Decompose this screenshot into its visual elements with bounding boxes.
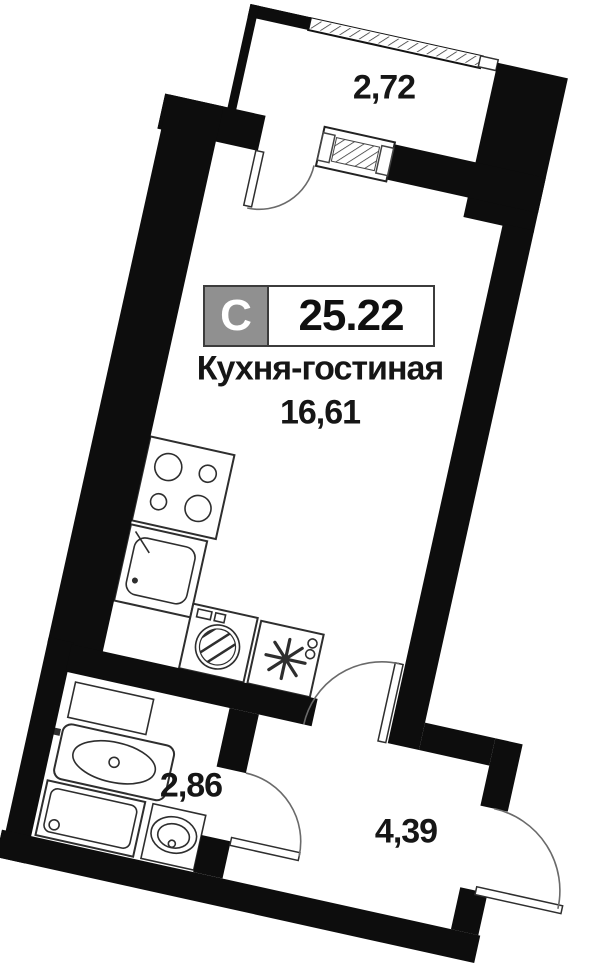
floor-plan-svg [0, 0, 600, 968]
bath-hall-wall-upper [217, 708, 259, 773]
glazing-hatch [311, 20, 481, 66]
bathroom-door [230, 773, 314, 860]
entrance-door [475, 809, 580, 914]
living-room-name-label: Кухня-гостиная [197, 350, 443, 389]
stove-body [132, 436, 235, 539]
floor-plan-drawing [0, 0, 600, 968]
unit-total-area: 25.22 [267, 285, 435, 347]
stove-4-burner-icon [132, 436, 235, 539]
entrance-door-leaf [475, 887, 563, 914]
washing-machine-icon [179, 604, 258, 683]
unit-type-letter: С [203, 285, 267, 347]
balcony-door-leaf [244, 150, 264, 206]
bathroom-area-label: 2,86 [160, 767, 222, 806]
washer-knob [214, 613, 225, 623]
hallway-area-label: 4,39 [375, 813, 437, 852]
balcony-left-wall [226, 4, 259, 115]
floor-plan-page: С 25.22 2,72 Кухня-гостиная 16,61 2,86 4… [0, 0, 600, 968]
bathroom-door-leaf [230, 838, 300, 861]
balcony-glazing [308, 17, 498, 71]
unit-badge: С 25.22 [203, 285, 435, 347]
appliance-snowflake-icon [247, 621, 323, 697]
glazing-end-cap [478, 56, 498, 71]
balcony-area-label: 2,72 [353, 69, 415, 108]
hallway-top-wall [419, 723, 495, 766]
living-room-area-label: 16,61 [280, 394, 360, 433]
balcony-window-block [316, 127, 395, 182]
balcony-door [243, 150, 314, 220]
